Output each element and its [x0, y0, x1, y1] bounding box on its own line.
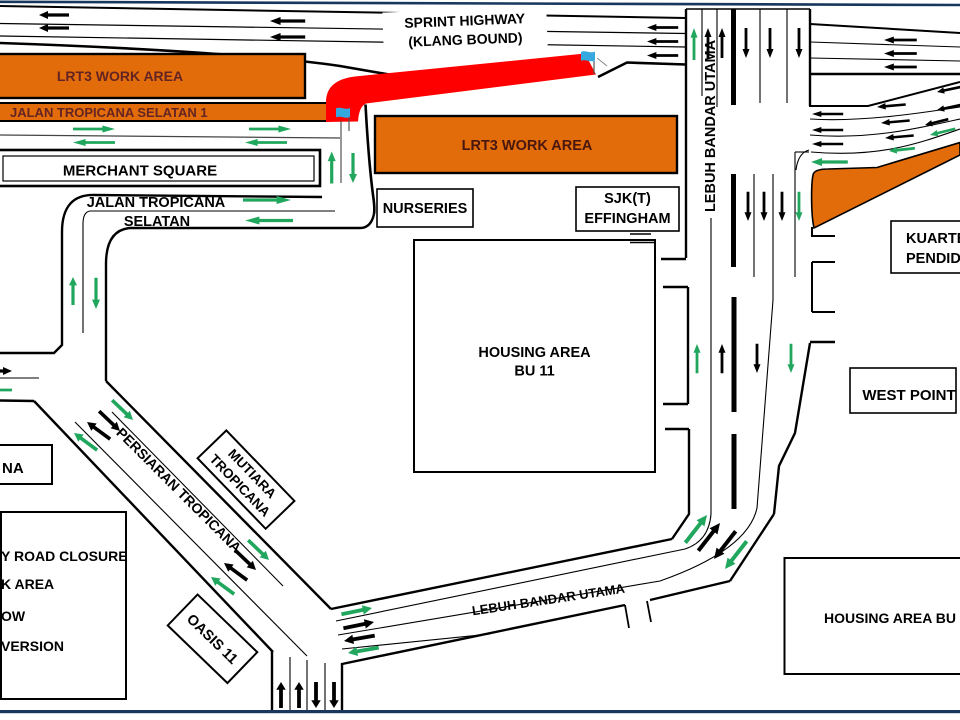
svg-text:LRT3 WORK AREA: LRT3 WORK AREA [462, 138, 593, 154]
svg-text:PENDIDIKAN: PENDIDIKAN [906, 251, 960, 267]
svg-text:HOUSING AREA: HOUSING AREA [478, 345, 591, 361]
svg-text:EFFINGHAM: EFFINGHAM [584, 211, 670, 227]
svg-text:HOUSING AREA BU 12: HOUSING AREA BU 12 [824, 610, 960, 626]
svg-text:LRT3 WORK AREA: LRT3 WORK AREA [57, 68, 183, 84]
svg-text:NA: NA [2, 460, 24, 477]
svg-text:NURSERIES: NURSERIES [383, 201, 468, 217]
svg-text:KUARTERS: KUARTERS [906, 231, 960, 247]
svg-text:JALAN TROPICANA: JALAN TROPICANA [87, 195, 226, 211]
svg-text:K AREA: K AREA [1, 576, 54, 592]
svg-text:Y ROAD CLOSURE: Y ROAD CLOSURE [1, 548, 128, 564]
svg-text:WEST POINT: WEST POINT [862, 387, 955, 404]
svg-text:LEBUH BANDAR UTAMA: LEBUH BANDAR UTAMA [703, 39, 719, 212]
svg-text:OW: OW [1, 608, 26, 624]
svg-text:VERSION: VERSION [1, 638, 64, 654]
svg-text:JALAN TROPICANA SELATAN 1: JALAN TROPICANA SELATAN 1 [10, 105, 208, 120]
svg-text:LEBUH BANDAR UTAMA: LEBUH BANDAR UTAMA [471, 581, 626, 619]
svg-text:BU 11: BU 11 [514, 364, 554, 380]
svg-text:MERCHANT SQUARE: MERCHANT SQUARE [63, 163, 217, 180]
svg-text:SJK(T): SJK(T) [604, 191, 651, 207]
svg-text:SELATAN: SELATAN [124, 214, 190, 230]
